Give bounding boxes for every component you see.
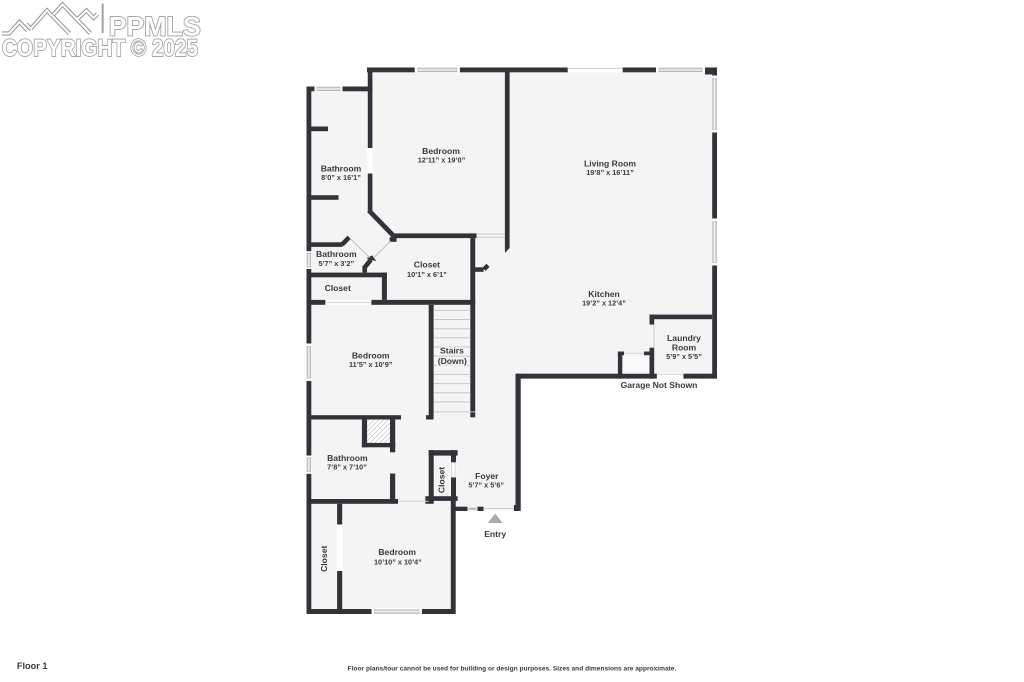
svg-text:19’8” x 16’11”: 19’8” x 16’11” [586, 168, 634, 177]
svg-text:Closet: Closet [325, 283, 351, 293]
svg-text:Closet: Closet [437, 467, 447, 493]
svg-text:5’7” x 5’6”: 5’7” x 5’6” [468, 481, 504, 490]
svg-text:12’11” x 19’0”: 12’11” x 19’0” [418, 155, 466, 164]
svg-text:Closet: Closet [414, 260, 440, 270]
svg-text:(Down): (Down) [438, 356, 467, 366]
svg-text:7’8” x 7’10”: 7’8” x 7’10” [327, 462, 367, 471]
svg-text:5’9” x 5’5”: 5’9” x 5’5” [666, 352, 702, 361]
svg-text:Laundry: Laundry [667, 333, 701, 343]
svg-text:Floor plans/tour cannot be use: Floor plans/tour cannot be used for buil… [348, 665, 677, 672]
svg-text:Foyer: Foyer [475, 471, 499, 481]
svg-text:Bedroom: Bedroom [352, 350, 390, 360]
svg-text:10’1” x 6’1”: 10’1” x 6’1” [407, 270, 447, 279]
svg-text:Bathroom: Bathroom [327, 453, 368, 463]
svg-text:19’2” x 12’4”: 19’2” x 12’4” [582, 298, 626, 307]
svg-text:Floor 1: Floor 1 [17, 661, 48, 671]
svg-text:5’7” x 3’2”: 5’7” x 3’2” [318, 259, 354, 268]
svg-text:10’10” x 10’4”: 10’10” x 10’4” [374, 557, 422, 566]
svg-text:Entry: Entry [484, 529, 506, 539]
svg-text:Closet: Closet [319, 546, 329, 572]
svg-text:Bedroom: Bedroom [422, 146, 460, 156]
svg-text:8’0” x 16’1”: 8’0” x 16’1” [321, 173, 361, 182]
svg-text:Bedroom: Bedroom [378, 547, 416, 557]
svg-text:Stairs: Stairs [440, 346, 464, 356]
svg-text:Garage Not Shown: Garage Not Shown [621, 380, 698, 390]
svg-text:Bathroom: Bathroom [321, 163, 362, 173]
svg-text:Bathroom: Bathroom [316, 249, 357, 259]
svg-text:11’5” x 10’9”: 11’5” x 10’9” [349, 360, 393, 369]
svg-text:COPYRIGHT © 2025: COPYRIGHT © 2025 [2, 35, 198, 62]
